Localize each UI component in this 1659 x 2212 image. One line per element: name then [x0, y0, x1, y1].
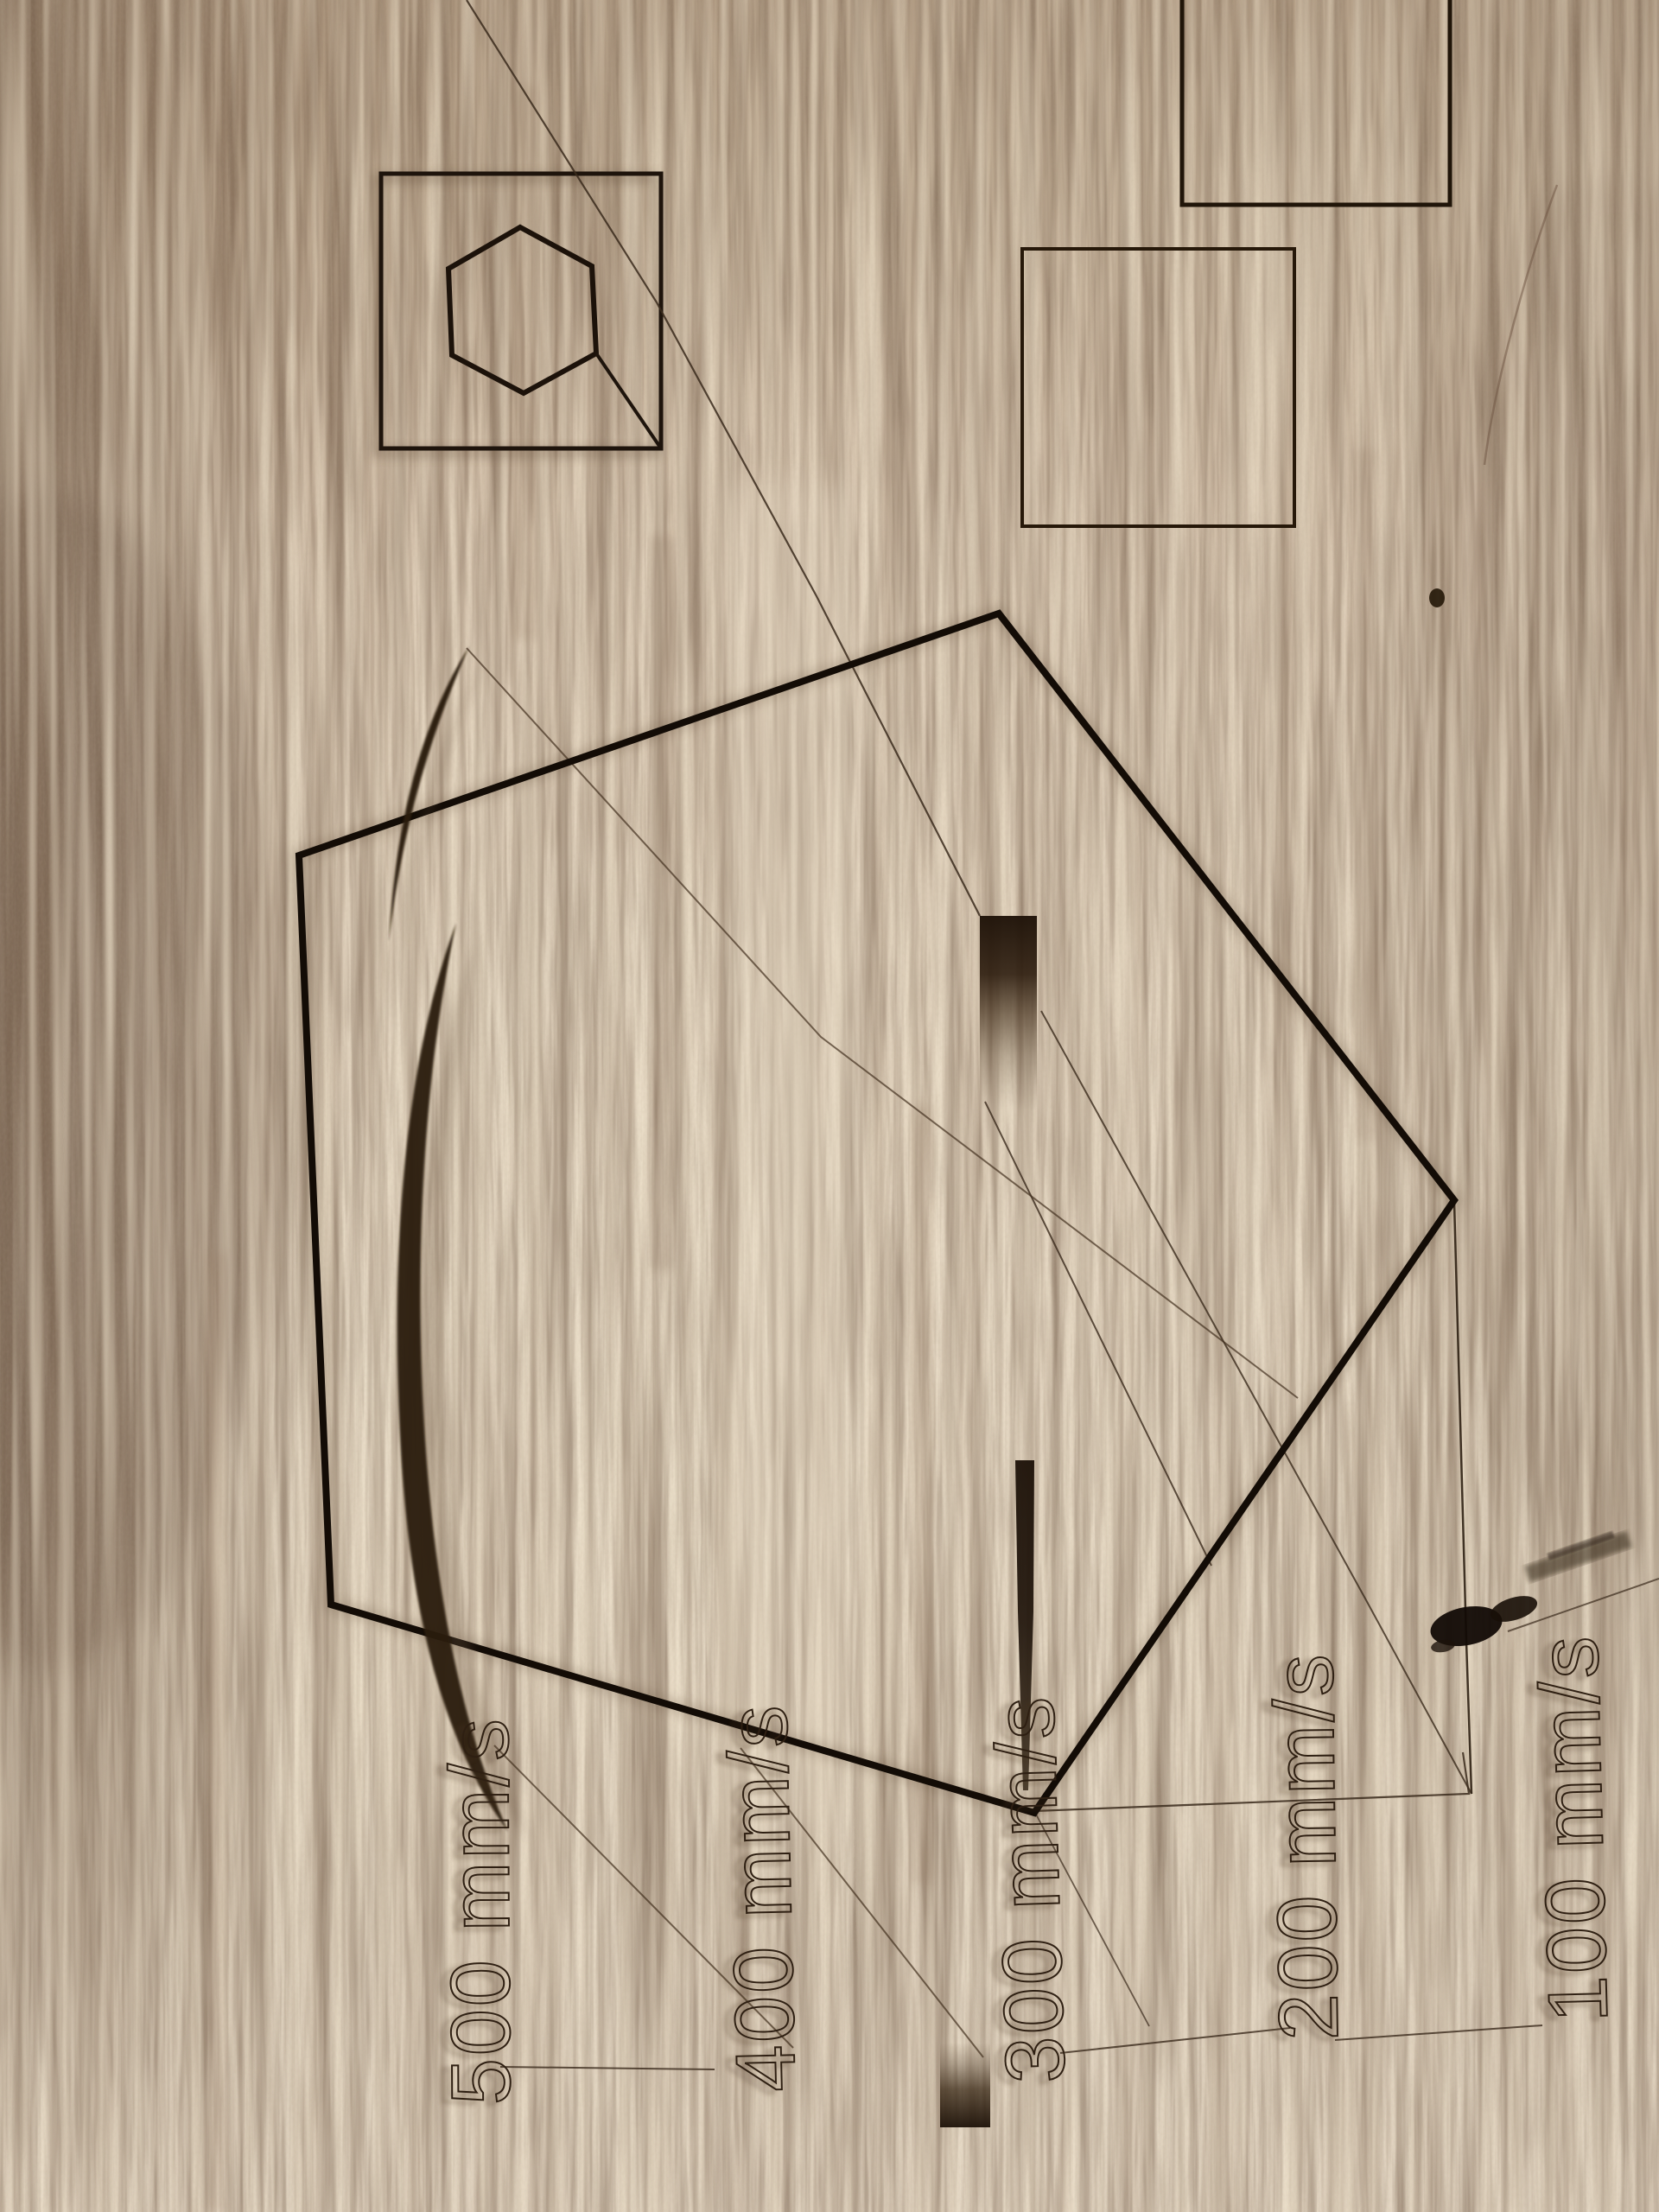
svg-text:300 mm/s: 300 mm/s	[977, 1694, 1083, 2085]
svg-text:100 mm/s: 100 mm/s	[1521, 1633, 1625, 2024]
svg-text:400 mm/s: 400 mm/s	[710, 1702, 813, 2093]
svg-text:500 mm/s: 500 mm/s	[432, 1716, 528, 2105]
svg-text:200 mm/s: 200 mm/s	[1256, 1651, 1356, 2041]
